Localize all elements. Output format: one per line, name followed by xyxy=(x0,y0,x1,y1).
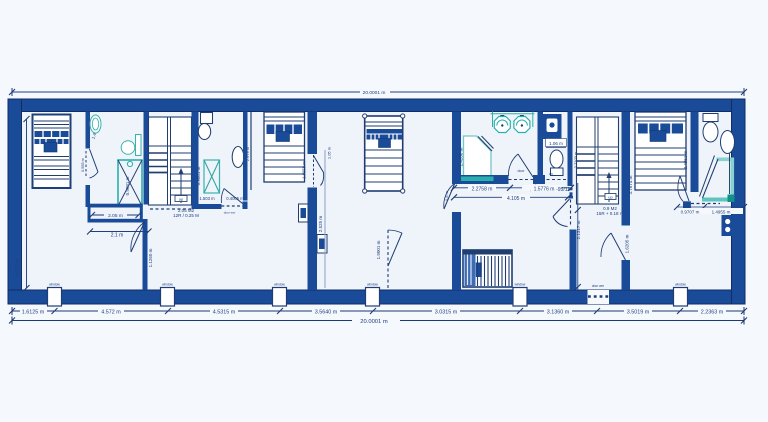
svg-text:-95/11: -95/11 xyxy=(556,187,570,193)
svg-text:1.05 m: 1.05 m xyxy=(327,146,332,159)
svg-text:20.0001 m: 20.0001 m xyxy=(363,90,386,96)
svg-text:wc: wc xyxy=(549,172,553,176)
svg-text:1.4955 m: 1.4955 m xyxy=(712,210,731,215)
svg-text:0.9081 m: 0.9081 m xyxy=(196,166,201,185)
svg-text:door wm: door wm xyxy=(224,211,236,215)
svg-text:0.4005 m: 0.4005 m xyxy=(226,196,244,201)
svg-text:4.5315 m: 4.5315 m xyxy=(213,310,236,316)
svg-text:2.2363 m: 2.2363 m xyxy=(701,310,724,316)
svg-text:0.9707 m: 0.9707 m xyxy=(681,210,700,215)
svg-text:4.972 m: 4.972 m xyxy=(15,259,21,277)
svg-text:3.5019 m: 3.5019 m xyxy=(627,310,650,316)
svg-text:2.1 m: 2.1 m xyxy=(111,233,124,239)
svg-text:20.0001 m: 20.0001 m xyxy=(360,319,388,325)
svg-text:up: up xyxy=(179,197,184,202)
svg-text:1.503 m: 1.503 m xyxy=(199,196,215,201)
svg-text:3.1360 m: 3.1360 m xyxy=(547,310,570,316)
svg-text:2.979 m: 2.979 m xyxy=(245,146,250,161)
svg-text:window: window xyxy=(367,283,378,287)
svg-text:1.5776 m: 1.5776 m xyxy=(534,186,555,192)
svg-text:15R + 0.18 m: 15R + 0.18 m xyxy=(596,211,623,216)
svg-text:1.1260 m: 1.1260 m xyxy=(148,248,153,267)
svg-text:door wm: door wm xyxy=(592,284,605,288)
svg-text:window: window xyxy=(162,283,173,287)
svg-text:0.8 m: 0.8 m xyxy=(444,190,449,201)
svg-text:0.555 m: 0.555 m xyxy=(81,158,85,172)
svg-text:12R / 0.25 M: 12R / 0.25 M xyxy=(173,213,199,218)
svg-text:0.9081 m: 0.9081 m xyxy=(125,176,130,195)
svg-text:1.0558 m: 1.0558 m xyxy=(302,161,307,179)
svg-text:1.6205 m: 1.6205 m xyxy=(625,234,630,253)
svg-text:window: window xyxy=(515,283,526,287)
svg-text:1.9001 m: 1.9001 m xyxy=(376,240,381,259)
svg-text:4.572 m: 4.572 m xyxy=(101,310,121,316)
svg-text:3.0315 m: 3.0315 m xyxy=(435,310,458,316)
svg-text:3.7674 m: 3.7674 m xyxy=(628,175,633,194)
svg-text:up: up xyxy=(608,195,613,200)
svg-text:2.4206 m: 2.4206 m xyxy=(459,147,464,166)
svg-text:3.5640 m: 3.5640 m xyxy=(315,310,338,316)
svg-text:window: window xyxy=(49,283,60,287)
svg-text:3.6753 m: 3.6753 m xyxy=(143,152,147,168)
svg-text:1.06 m: 1.06 m xyxy=(549,141,563,146)
svg-text:2.1317 m: 2.1317 m xyxy=(576,220,581,239)
svg-text:2.2758 m: 2.2758 m xyxy=(472,186,493,192)
svg-text:door: door xyxy=(517,169,525,173)
svg-text:window: window xyxy=(274,283,285,287)
svg-text:4.105 m: 4.105 m xyxy=(507,196,525,202)
svg-text:2.4951 m: 2.4951 m xyxy=(683,150,688,169)
svg-text:1.6125 m: 1.6125 m xyxy=(22,310,45,316)
svg-text:2.525 m: 2.525 m xyxy=(318,216,323,233)
svg-text:2.05 m: 2.05 m xyxy=(108,213,123,219)
svg-text:window: window xyxy=(675,283,686,287)
